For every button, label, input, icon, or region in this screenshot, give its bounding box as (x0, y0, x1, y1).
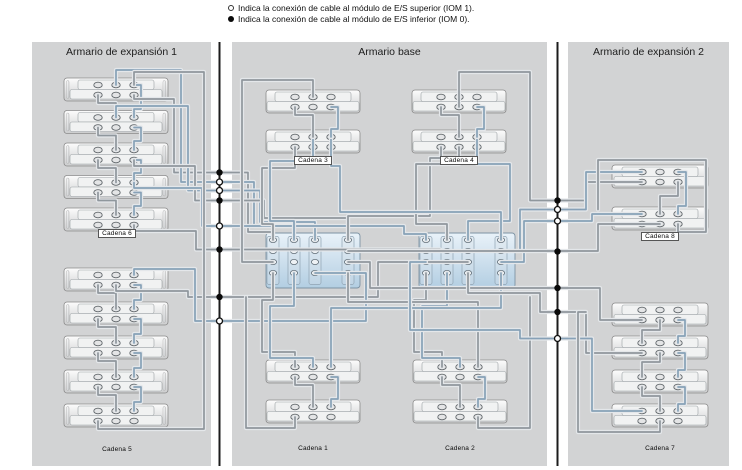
iom0-port (112, 316, 120, 322)
iom0-connection-dot (554, 197, 560, 203)
iom0-connection-dot (554, 285, 560, 291)
iom0-connection-dot (216, 246, 222, 252)
iom1-port (94, 272, 102, 278)
shelf-group-label-cadena-8: Cadena 8 (615, 233, 705, 240)
shelf-group-label-cadena-2: Cadena 2 (415, 445, 505, 452)
hba-port (290, 259, 297, 264)
iom1-port (94, 340, 102, 346)
iom1-port (94, 212, 102, 218)
cabinet-title-base: Armario base (232, 46, 547, 58)
iom1-port (94, 408, 102, 414)
iom0-port (309, 414, 317, 420)
shelf-left-cap (67, 271, 70, 289)
iom0-port (327, 414, 335, 420)
iom1-connection-dot (217, 179, 223, 185)
iom1-port (656, 307, 664, 313)
shelf-right-cap (163, 271, 166, 289)
iom0-port (112, 92, 120, 98)
shelf-group-label-cadena-4: Cadena 4 (414, 157, 504, 164)
iom0-port (309, 374, 317, 380)
iom1-port (638, 307, 646, 313)
iom0-port (112, 418, 120, 424)
shelf-group-label-text: Cadena 6 (98, 229, 136, 238)
hba-port (311, 259, 318, 264)
iom1-port (291, 134, 299, 140)
shelf-group-label-cadena-6: Cadena 6 (72, 230, 162, 237)
iom0-port (656, 384, 664, 390)
shelf-right-cap (163, 146, 166, 164)
iom1-port (437, 134, 445, 140)
cabling-diagram: Indica la conexión de cable al módulo de… (0, 0, 742, 470)
iom1-port (437, 94, 445, 100)
cabinet-title-expansion1: Armario de expansión 1 (32, 46, 211, 58)
legend-iom1: Indica la conexión de cable al módulo de… (228, 3, 474, 13)
iom0-port (112, 384, 120, 390)
iom1-port (94, 147, 102, 153)
iom1-port (438, 404, 446, 410)
legend-iom0-text: Indica la conexión de cable al módulo de… (238, 14, 470, 24)
shelf-right-cap (163, 373, 166, 391)
iom1-port (327, 94, 335, 100)
iom1-open-circle-icon (228, 5, 234, 11)
iom1-connection-dot (555, 336, 561, 342)
shelf-group-label-cadena-1: Cadena 1 (268, 445, 358, 452)
shelf-left-cap (67, 211, 70, 229)
iom1-port (291, 404, 299, 410)
iom1-port (94, 306, 102, 312)
iom1-port (656, 374, 664, 380)
shelf-left-cap (67, 146, 70, 164)
shelf-group-label-cadena-3: Cadena 3 (268, 157, 358, 164)
shelf-left-cap (67, 113, 70, 131)
iom0-port (112, 350, 120, 356)
iom0-port (130, 418, 138, 424)
iom0-port (309, 104, 317, 110)
shelf-right-cap (163, 407, 166, 425)
shelf-group-label-text: Cadena 4 (440, 156, 478, 165)
iom1-connection-dot (217, 318, 223, 324)
shelf-group-label-text: Cadena 8 (641, 232, 679, 241)
shelf-group-label-text: Cadena 3 (294, 156, 332, 165)
disk-shelf (612, 165, 708, 188)
iom0-port (674, 418, 682, 424)
shelf-left-cap (67, 178, 70, 196)
iom1-port (656, 169, 664, 175)
iom0-port (112, 157, 120, 163)
shelf-left-cap (67, 339, 70, 357)
shelf-right-cap (163, 339, 166, 357)
iom1-port (112, 272, 120, 278)
iom1-connection-dot (555, 218, 561, 224)
iom0-port (656, 179, 664, 185)
iom1-port (94, 374, 102, 380)
iom1-port (94, 180, 102, 186)
shelf-group-label-text: Cadena 7 (642, 445, 678, 452)
iom1-port (94, 115, 102, 121)
iom0-port (94, 222, 102, 228)
iom0-connection-dot (216, 169, 222, 175)
iom1-connection-dot (555, 207, 561, 213)
shelf-group-label-text: Cadena 2 (442, 445, 478, 452)
iom0-port (456, 374, 464, 380)
iom0-connection-dot (554, 248, 560, 254)
iom1-connection-dot (217, 223, 223, 229)
iom1-connection-dot (217, 188, 223, 194)
iom1-port (473, 94, 481, 100)
shelf-right-cap (163, 81, 166, 99)
shelf-left-cap (67, 373, 70, 391)
legend-iom1-text: Indica la conexión de cable al módulo de… (238, 3, 474, 13)
iom1-port (674, 307, 682, 313)
iom0-connection-dot (216, 294, 222, 300)
iom0-port (112, 190, 120, 196)
iom0-port (438, 414, 446, 420)
iom0-port (112, 125, 120, 131)
iom0-connection-dot (554, 309, 560, 315)
legend-iom0: Indica la conexión de cable al módulo de… (228, 14, 470, 24)
iom0-port (638, 418, 646, 424)
shelf-group-label-text: Cadena 5 (99, 446, 135, 453)
iom1-port (291, 94, 299, 100)
shelf-right-cap (163, 211, 166, 229)
iom0-port (112, 222, 120, 228)
shelf-group-label-text: Cadena 1 (295, 445, 331, 452)
disk-shelf (612, 370, 708, 393)
shelf-group-label-cadena-5: Cadena 5 (72, 446, 162, 453)
iom0-port (456, 414, 464, 420)
shelf-left-cap (67, 81, 70, 99)
shelf-left-cap (67, 407, 70, 425)
iom1-port (656, 340, 664, 346)
shelf-right-cap (163, 113, 166, 131)
shelf-right-cap (163, 305, 166, 323)
iom1-port (94, 82, 102, 88)
shelf-group-label-cadena-7: Cadena 7 (615, 445, 705, 452)
iom0-filled-circle-icon (228, 16, 234, 22)
iom0-connection-dot (216, 197, 222, 203)
shelf-left-cap (67, 305, 70, 323)
cabinet-title-expansion2: Armario de expansión 2 (568, 46, 729, 58)
